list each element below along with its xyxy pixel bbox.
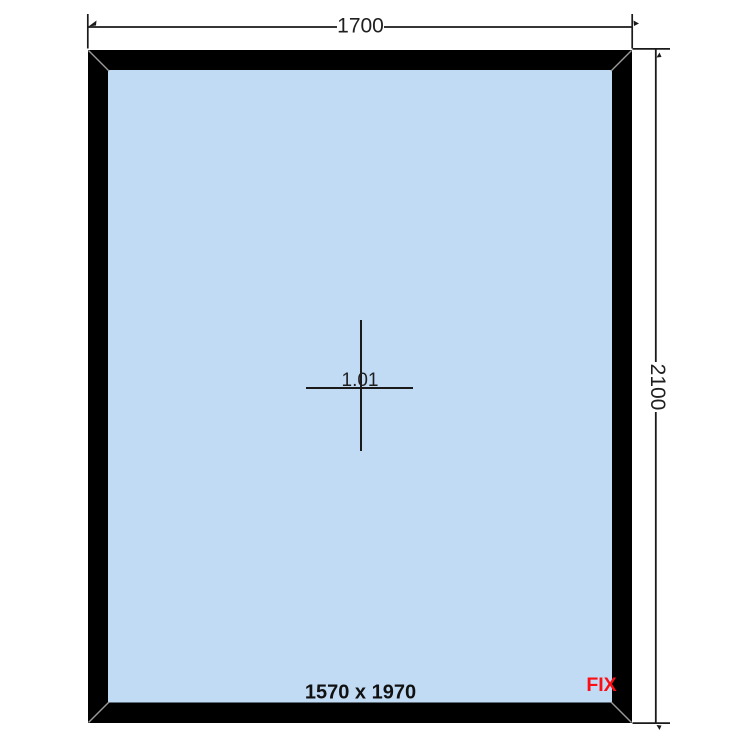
- svg-text:FIX: FIX: [586, 674, 616, 696]
- svg-text:2100: 2100: [646, 364, 669, 411]
- svg-text:1570 x 1970: 1570 x 1970: [305, 682, 416, 704]
- svg-text:1700: 1700: [337, 15, 384, 38]
- svg-text:1.01: 1.01: [342, 370, 379, 391]
